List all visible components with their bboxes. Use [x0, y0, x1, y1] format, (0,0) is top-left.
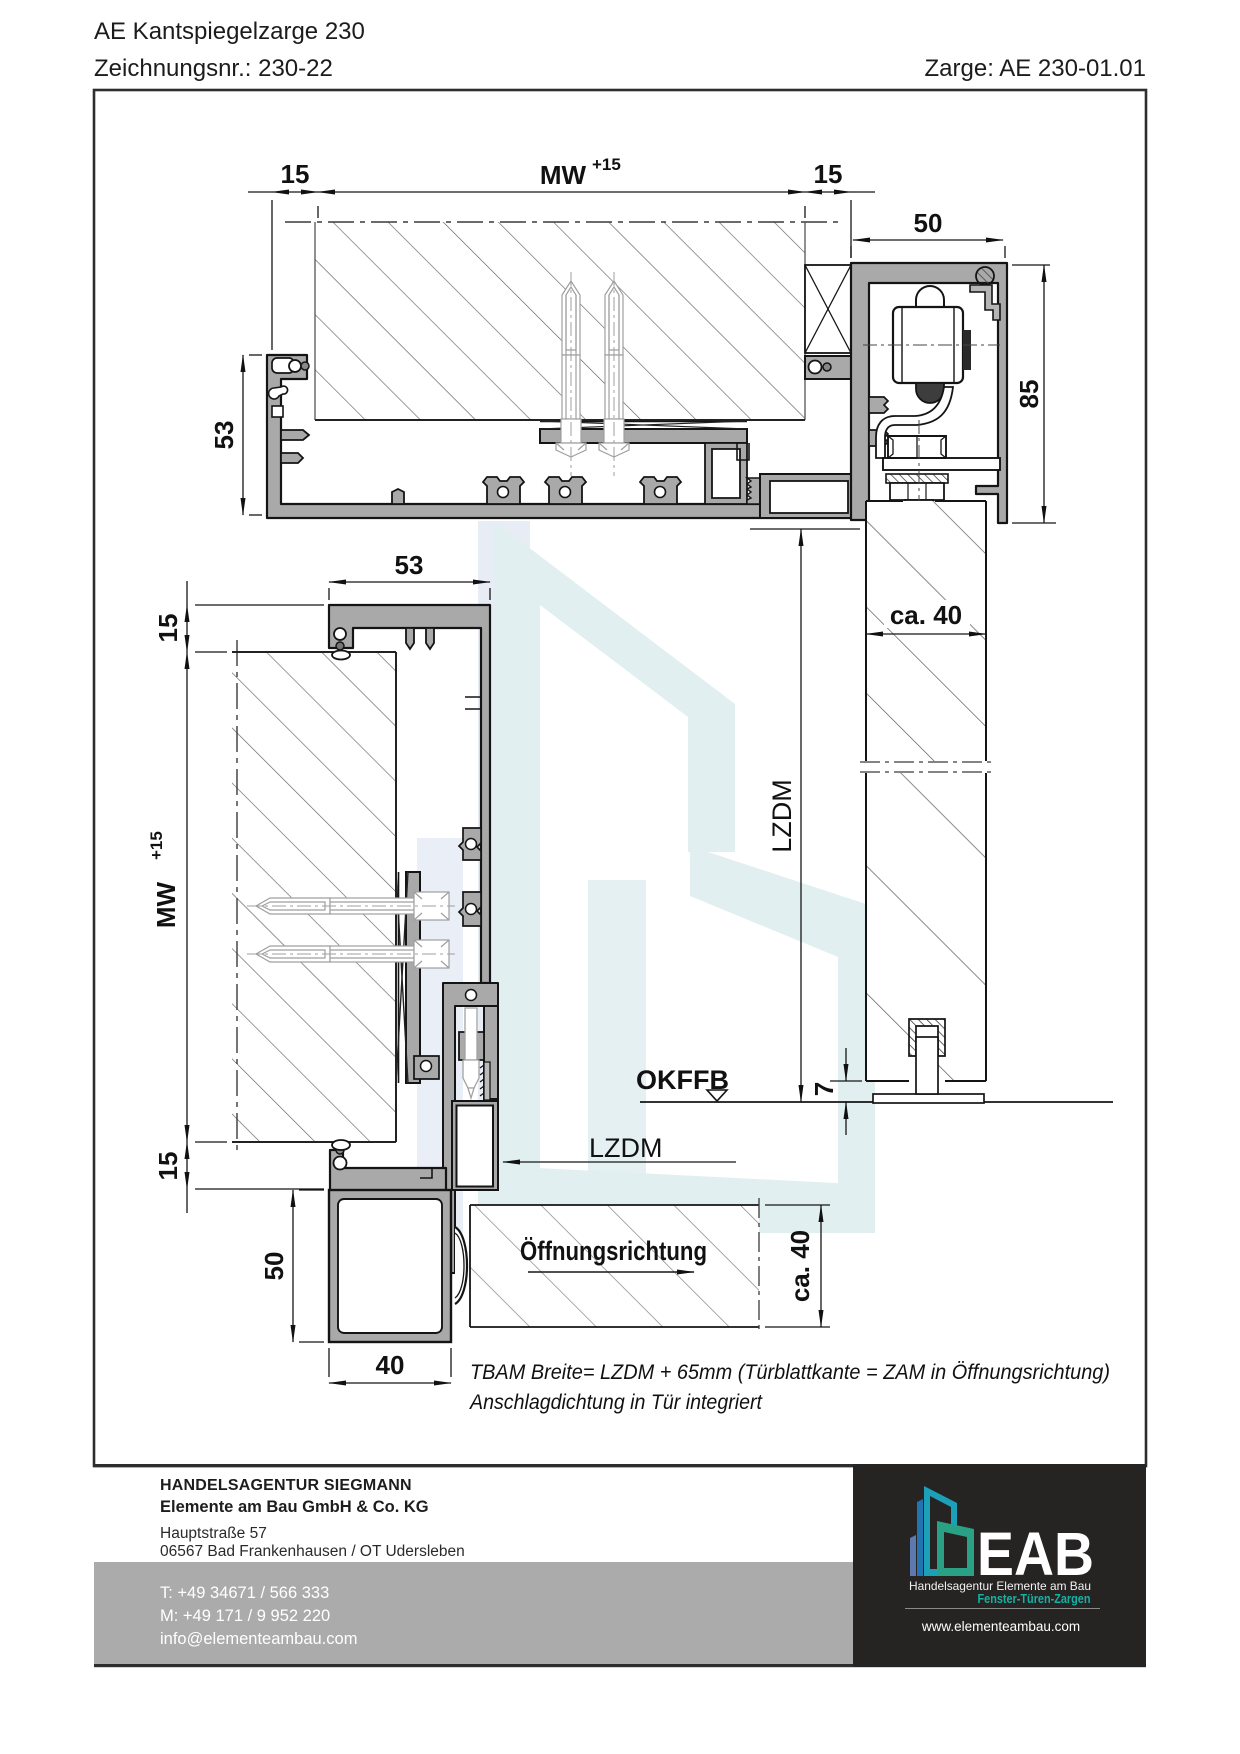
svg-text:Hauptstraße 57: Hauptstraße 57: [160, 1525, 267, 1542]
svg-text:M: +49 171 / 9 952 220: M: +49 171 / 9 952 220: [160, 1607, 330, 1625]
svg-text:www.elementeambau.com: www.elementeambau.com: [921, 1619, 1080, 1634]
svg-text:EAB: EAB: [977, 1520, 1094, 1588]
svg-text:T: +49 34671 / 566 333: T: +49 34671 / 566 333: [160, 1584, 329, 1602]
svg-text:info@elementeambau.com: info@elementeambau.com: [160, 1630, 357, 1648]
svg-text:Elemente am Bau GmbH & Co. KG: Elemente am Bau GmbH & Co. KG: [160, 1498, 429, 1516]
svg-text:HANDELSAGENTUR SIEGMANN: HANDELSAGENTUR SIEGMANN: [160, 1477, 412, 1494]
svg-text:Fenster-Türen-Zargen: Fenster-Türen-Zargen: [978, 1592, 1091, 1606]
svg-text:06567 Bad Frankenhausen / OT U: 06567 Bad Frankenhausen / OT Udersleben: [160, 1543, 465, 1560]
svg-text:Handelsagentur Elemente am Bau: Handelsagentur Elemente am Bau: [909, 1579, 1091, 1593]
